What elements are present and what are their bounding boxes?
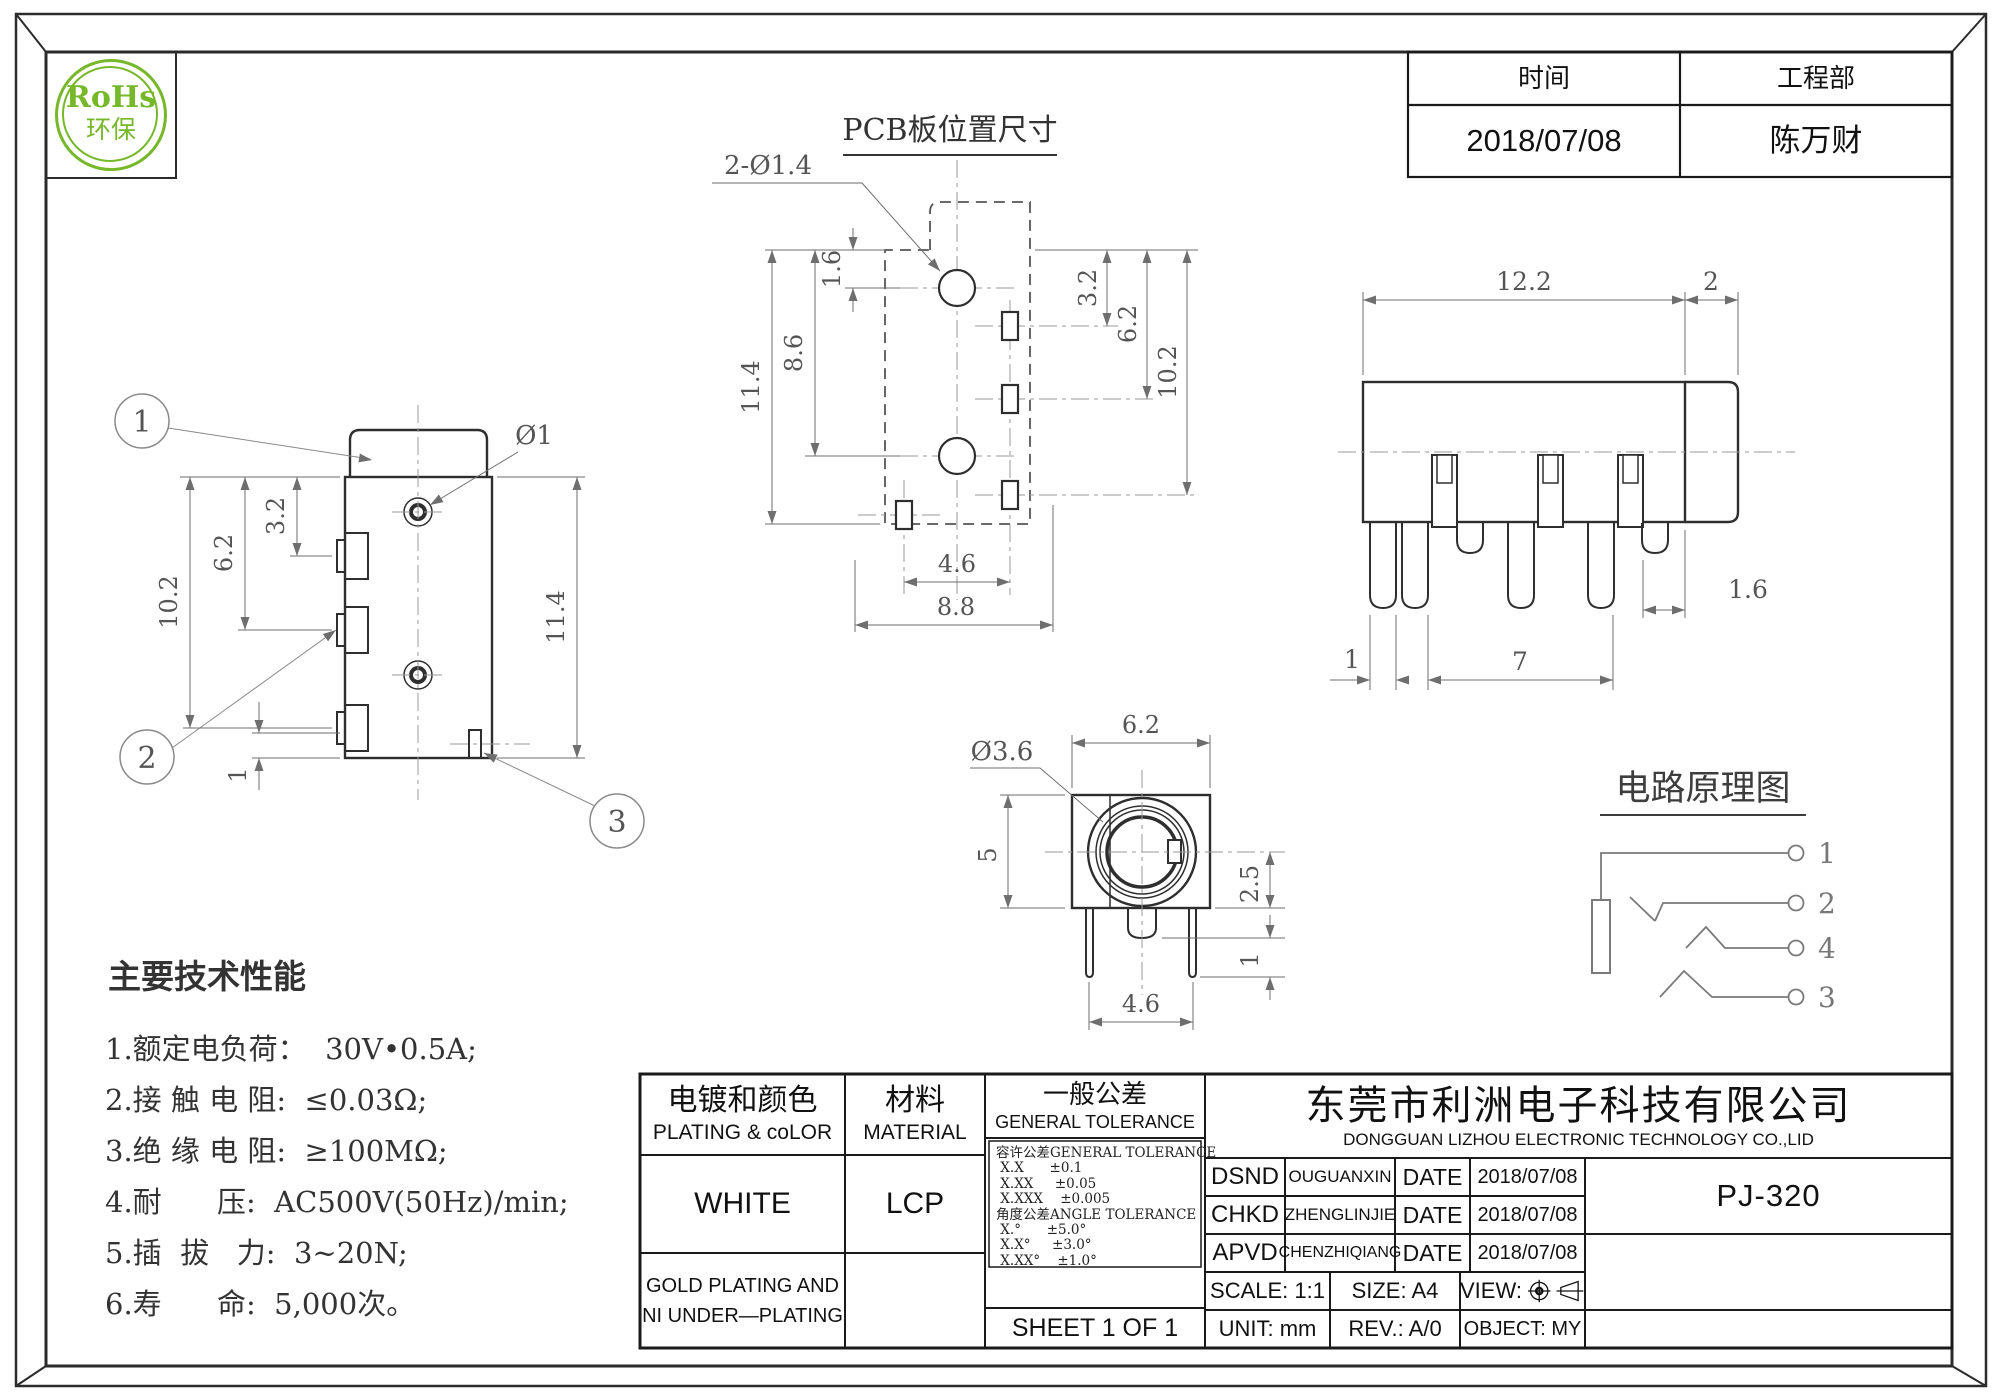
right-dim-12-2: 12.2 <box>1496 267 1552 296</box>
plating-note: GOLD PLATING AND NI UNDER—PLATING <box>640 1253 845 1348</box>
front-view: 6.2 Ø3.6 5 2.5 1 4.6 <box>970 711 1285 1030</box>
pcb-dim-3-2: 3.2 <box>1074 269 1102 307</box>
left-dim-11-4: 11.4 <box>542 590 570 643</box>
right-side-view: 12.2 2 1.6 1 7 <box>1330 267 1795 690</box>
rohs-subtext: 环保 <box>86 116 136 145</box>
info-dept-label: 工程部 <box>1680 52 1952 105</box>
pcb-dim-10-2: 10.2 <box>1154 345 1182 398</box>
terminal-3: 3 <box>1818 981 1836 1014</box>
signer-role: DSND <box>1205 1158 1285 1196</box>
left-side-view: 1 2 3 <box>115 394 644 848</box>
signer-role: APVD <box>1205 1234 1285 1272</box>
signer-role: CHKD <box>1205 1196 1285 1234</box>
terminal-2: 2 <box>1818 887 1836 920</box>
signer-name: OUGUANXIN <box>1285 1158 1395 1196</box>
pcb-dim-8-8: 8.8 <box>937 593 975 621</box>
pcb-layout-view: PCB板位置尺寸 <box>712 113 1198 632</box>
specs-title: 主要技术性能 <box>108 950 306 998</box>
specs-list: 1.额定电负荷： 30V•0.5A; 2.接 触 电 阻: ≤0.03Ω; 3.… <box>105 1024 569 1330</box>
view-cell: VIEW: <box>1460 1272 1585 1310</box>
material-header-cn: 材料 <box>885 1084 945 1119</box>
tolerance-header: 一般公差 GENERAL TOLERANCE <box>985 1074 1205 1138</box>
left-dim-3-2: 3.2 <box>262 497 290 535</box>
terminal-1: 1 <box>1818 837 1836 870</box>
right-dim-1: 1 <box>1344 645 1360 674</box>
material-header: 材料 MATERIAL <box>845 1074 985 1155</box>
material-value: LCP <box>845 1155 985 1253</box>
material-header-en: MATERIAL <box>863 1121 966 1145</box>
scale-cell: SCALE: 1:1 <box>1205 1272 1330 1310</box>
projection-view-icon <box>1528 1277 1585 1305</box>
pcb-dim-11-4: 11.4 <box>737 360 765 413</box>
size-cell: SIZE: A4 <box>1330 1272 1460 1310</box>
pcb-hole-note: 2-Ø1.4 <box>724 151 812 181</box>
front-dim-4-6: 4.6 <box>1122 990 1160 1018</box>
plating-header-cn: 电镀和颜色 <box>668 1084 818 1119</box>
plating-header: 电镀和颜色 PLATING & coLOR <box>640 1074 845 1155</box>
terminal-4: 4 <box>1818 932 1836 965</box>
front-dim-phi3-6: Ø3.6 <box>971 737 1034 767</box>
signer-name: CHENZHIQIANG <box>1285 1234 1395 1272</box>
company-block: 东莞市利洲电子科技有限公司 DONGGUAN LIZHOU ELECTRONIC… <box>1205 1074 1952 1158</box>
company-name-en: DONGGUAN LIZHOU ELECTRONIC TECHNOLOGY CO… <box>1343 1130 1814 1150</box>
tolerance-header-en: GENERAL TOLERANCE <box>995 1112 1195 1133</box>
schematic-title: 电路原理图 <box>1615 769 1790 809</box>
part-number: PJ-320 <box>1585 1158 1952 1234</box>
info-dept-value: 陈万财 <box>1680 105 1952 177</box>
pcb-dim-4-6: 4.6 <box>938 550 976 578</box>
object-cell: OBJECT: MY <box>1460 1310 1585 1348</box>
plating-header-en: PLATING & coLOR <box>653 1121 832 1145</box>
pcb-dim-1-6: 1.6 <box>818 250 846 288</box>
pcb-dim-8-6: 8.6 <box>780 334 808 372</box>
signer-date: 2018/07/08 <box>1470 1158 1585 1196</box>
tolerance-table: 容许公差GENERAL TOLERANCE X.X ±0.1 X.XX ±0.0… <box>996 1146 1196 1264</box>
right-dim-1-6: 1.6 <box>1728 575 1768 604</box>
balloon-2: 2 <box>137 741 156 776</box>
view-label: VIEW: <box>1460 1278 1522 1303</box>
left-dim-phi1: Ø1 <box>515 421 553 451</box>
rev-cell: REV.: A/0 <box>1330 1310 1460 1348</box>
front-dim-6-2: 6.2 <box>1122 711 1160 739</box>
circuit-schematic: 电路原理图 1 2 4 3 <box>1592 769 1836 1014</box>
sheet-label: SHEET 1 OF 1 <box>985 1308 1205 1348</box>
plating-value: WHITE <box>640 1155 845 1253</box>
engineering-drawing-page: PCB板位置尺寸 <box>0 0 2000 1400</box>
rohs-logo: RoHs 环保 <box>46 52 176 178</box>
info-time-label: 时间 <box>1408 52 1680 105</box>
right-dim-7: 7 <box>1512 647 1528 676</box>
left-dim-10-2: 10.2 <box>155 575 183 628</box>
signer-date-label: DATE <box>1395 1196 1470 1234</box>
rohs-text: RoHs <box>66 81 156 116</box>
right-dim-2: 2 <box>1703 267 1719 296</box>
signer-date: 2018/07/08 <box>1470 1234 1585 1272</box>
unit-cell: UNIT: mm <box>1205 1310 1330 1348</box>
left-dim-1: 1 <box>224 767 252 782</box>
balloon-3: 3 <box>607 805 626 840</box>
signer-date-label: DATE <box>1395 1158 1470 1196</box>
front-dim-2-5: 2.5 <box>1236 865 1264 903</box>
pcb-view-title: PCB板位置尺寸 <box>842 113 1057 148</box>
signer-name: ZHENGLINJIE <box>1285 1196 1395 1234</box>
signer-date-label: DATE <box>1395 1234 1470 1272</box>
front-dim-1: 1 <box>1236 952 1264 967</box>
left-dim-6-2: 6.2 <box>210 534 238 572</box>
front-dim-5: 5 <box>974 847 1002 862</box>
balloon-1: 1 <box>132 405 151 440</box>
company-name-cn: 东莞市利洲电子科技有限公司 <box>1306 1083 1852 1129</box>
pcb-dim-6-2: 6.2 <box>1114 305 1142 343</box>
tolerance-header-cn: 一般公差 <box>1043 1080 1147 1110</box>
signer-date: 2018/07/08 <box>1470 1196 1585 1234</box>
info-time-value: 2018/07/08 <box>1408 105 1680 177</box>
